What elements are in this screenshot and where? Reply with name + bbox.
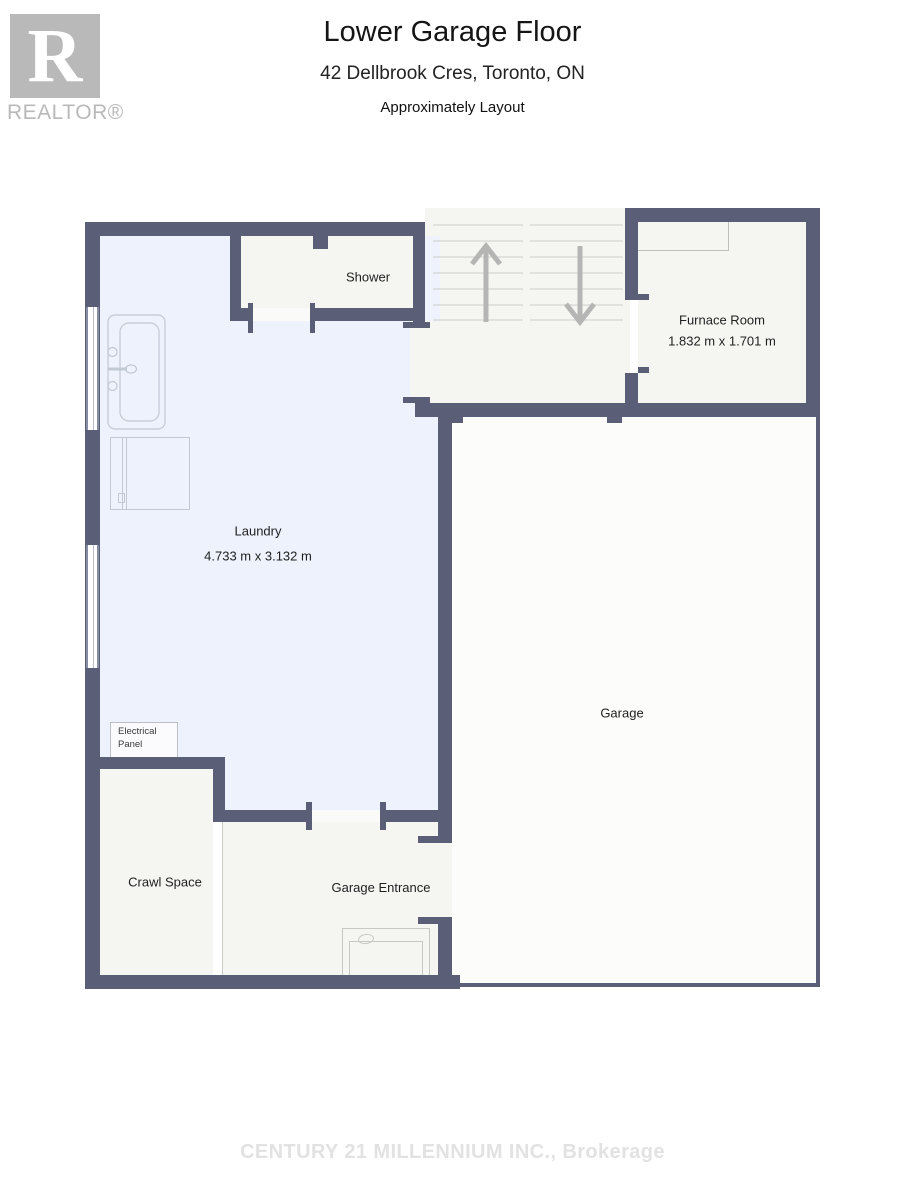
washer-appliance — [110, 437, 190, 510]
wall-shower-bottom-b — [313, 308, 413, 321]
wall-shower-right — [413, 222, 425, 328]
crawl-entrance-divider — [222, 822, 223, 975]
wall-top-left-section — [85, 222, 425, 236]
address-subtitle: 42 Dellbrook Cres, Toronto, ON — [0, 63, 905, 85]
door-jamb — [403, 397, 430, 403]
laundry-label: Laundry — [235, 524, 282, 539]
garage-label: Garage — [600, 706, 643, 721]
door-jamb — [248, 303, 253, 333]
furnace-room-label: Furnace Room — [679, 313, 765, 328]
tub-handle-icon — [108, 382, 117, 391]
wall-shower-left — [230, 222, 241, 321]
electrical-panel: Electrical Panel — [110, 722, 178, 761]
wall-garage-right-thin — [816, 417, 820, 987]
garage-floor — [452, 417, 816, 983]
door-jamb — [638, 367, 649, 373]
page-title: Lower Garage Floor — [0, 16, 905, 49]
electrical-panel-label: Electrical Panel — [118, 726, 157, 750]
door-jamb — [403, 322, 430, 328]
washer-hinge — [118, 493, 125, 503]
furnace-room-dims: 1.832 m x 1.701 m — [668, 334, 776, 349]
wall-furnace-top — [625, 208, 820, 222]
door-jamb — [310, 303, 315, 333]
furnace-unit — [638, 222, 729, 251]
tub-handle-icon — [108, 348, 117, 357]
laundry-entrance-door-gap — [312, 810, 380, 822]
laundry-dims: 4.733 m x 3.132 m — [204, 549, 312, 564]
wall-garage-left-upper — [438, 403, 452, 842]
brokerage-watermark: CENTURY 21 MILLENNIUM INC., Brokerage — [0, 1141, 905, 1164]
wall-furnace-left-lower — [625, 373, 638, 417]
wall-shower-top-stub — [313, 236, 328, 249]
shower-door-gap — [253, 308, 313, 321]
door-jamb — [306, 802, 312, 830]
window — [86, 545, 99, 668]
crawl-space-label: Crawl Space — [128, 875, 202, 890]
wall-garage-left-lower — [438, 917, 452, 980]
door-jamb — [418, 917, 452, 924]
water-tank-inner — [349, 941, 423, 977]
door-jamb — [448, 417, 463, 423]
door-jamb — [607, 417, 622, 423]
wall-right-upper — [806, 208, 820, 417]
wall-under-stairs — [415, 403, 820, 417]
wall-laundry-bottom-a — [213, 810, 312, 822]
stairs-up-arrow-icon — [472, 246, 500, 322]
approximate-note: Approximately Layout — [0, 99, 905, 116]
staircase — [425, 208, 630, 408]
shower-label: Shower — [346, 270, 390, 285]
window — [86, 307, 99, 430]
bathtub — [100, 308, 172, 440]
floor-plan-page: R REALTOR® Lower Garage Floor 42 Dellbro… — [0, 0, 905, 1200]
door-jamb — [638, 294, 649, 300]
door-jamb — [418, 836, 452, 843]
garage-entrance-label: Garage Entrance — [326, 879, 436, 897]
wall-furnace-left-upper — [625, 208, 638, 300]
door-jamb — [380, 802, 386, 830]
wall-crawl-top — [85, 757, 225, 769]
wall-bottom-left-section — [85, 975, 460, 989]
crawl-space-floor — [100, 769, 213, 975]
wall-garage-bottom-thin — [452, 983, 820, 987]
